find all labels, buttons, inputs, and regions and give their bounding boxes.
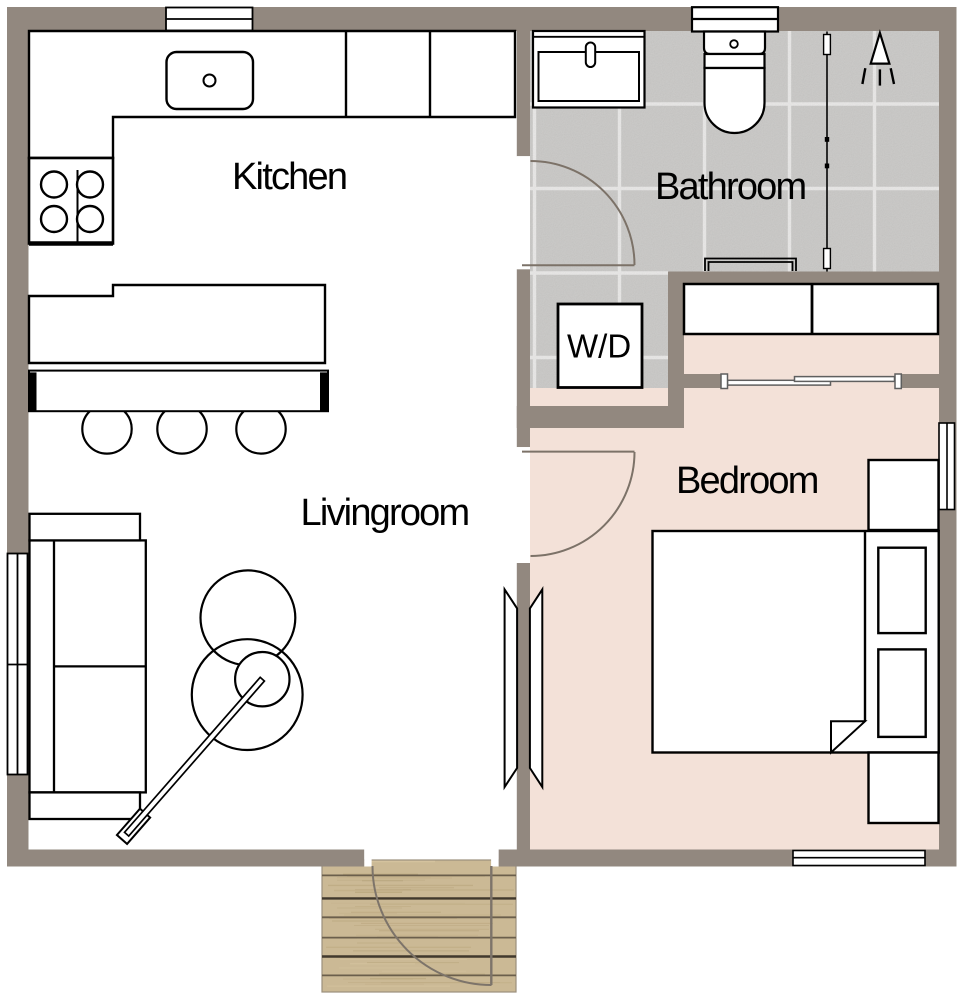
svg-text:Livingroom: Livingroom (301, 492, 469, 534)
svg-text:Bedroom: Bedroom (676, 460, 818, 502)
svg-text:W/D: W/D (567, 328, 631, 365)
svg-text:Bathroom: Bathroom (655, 166, 805, 208)
svg-text:Kitchen: Kitchen (232, 156, 346, 198)
